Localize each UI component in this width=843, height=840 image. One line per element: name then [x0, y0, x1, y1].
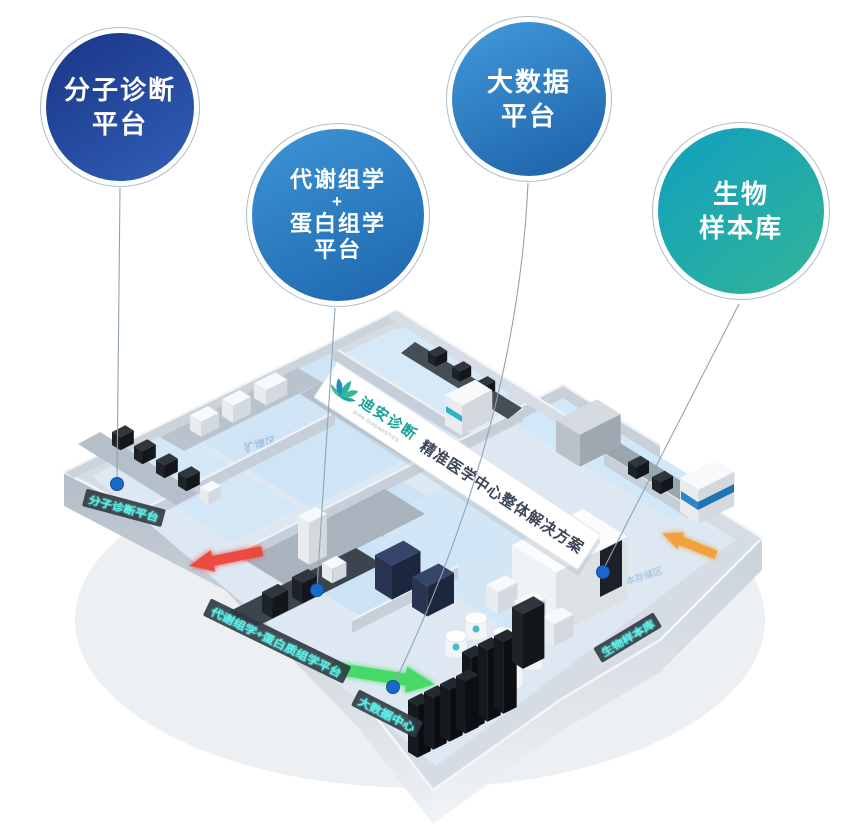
tank-logo-dot	[473, 626, 480, 633]
tank-logo-dot	[453, 644, 460, 651]
callout-line: 分子诊断	[64, 73, 176, 107]
server-rack-left	[424, 692, 433, 750]
server-rack-left	[494, 636, 503, 714]
callout-line: 代谢组学	[290, 167, 386, 193]
callout-line: 大数据	[487, 65, 571, 99]
callout-line-plus: +	[332, 193, 344, 211]
leader-dot-bigdata	[387, 681, 400, 694]
equipment-box-right	[309, 514, 327, 565]
server-rack-right	[465, 675, 478, 734]
callout-line: 样本库	[699, 211, 783, 245]
server-rack-right	[523, 603, 544, 669]
leader-dot-molecular	[111, 478, 124, 491]
callout-big-data-platform: 大数据 平台	[446, 16, 612, 182]
callout-disc: 大数据 平台	[452, 22, 606, 176]
callout-line: 平台	[314, 237, 362, 263]
leader-dot-biobank	[597, 566, 610, 579]
precision-medicine-center-infographic: 扩增区 色谱质谱区 样本存储区	[0, 0, 843, 840]
callout-line: 生物	[713, 177, 769, 211]
callout-biobank: 生物 样本库	[652, 122, 830, 300]
equipment-box-left	[298, 516, 309, 565]
server-rack-left	[512, 607, 523, 669]
callout-metabolomics-proteomics-platform: 代谢组学 + 蛋白组学 平台	[246, 123, 430, 307]
leader-dot-omics	[311, 584, 324, 597]
server-rack-left	[456, 676, 465, 734]
callout-line: 蛋白组学	[290, 211, 386, 237]
callout-disc: 分子诊断 平台	[46, 33, 194, 181]
server-rack-left	[440, 684, 449, 742]
tank-lid	[445, 630, 467, 642]
server-rack-left	[478, 644, 487, 722]
callout-disc: 代谢组学 + 蛋白组学 平台	[252, 129, 424, 301]
cryo-tank	[465, 612, 487, 640]
tank-lid	[465, 612, 487, 624]
callout-molecular-diagnostics-platform: 分子诊断 平台	[40, 27, 200, 187]
callout-disc: 生物 样本库	[658, 128, 824, 294]
callout-line: 平台	[92, 107, 148, 141]
callout-line: 平台	[501, 99, 557, 133]
